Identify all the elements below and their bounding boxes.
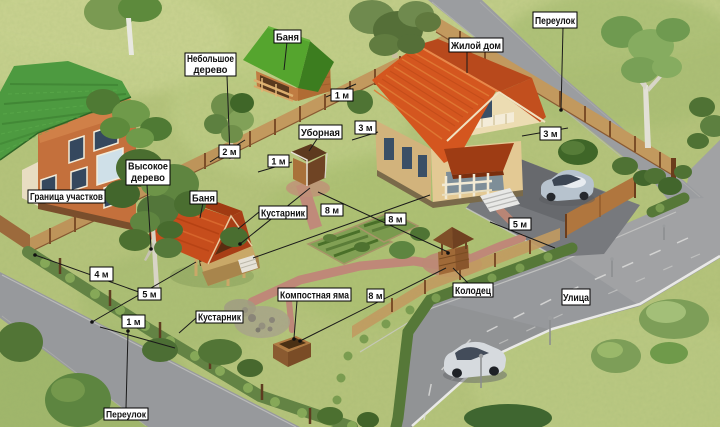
svg-text:Баня: Баня <box>276 33 299 44</box>
svg-text:Переулок: Переулок <box>106 410 146 421</box>
svg-text:1 м: 1 м <box>271 157 286 167</box>
svg-text:дерево: дерево <box>131 173 165 184</box>
svg-text:дерево: дерево <box>194 65 228 76</box>
svg-text:Баня: Баня <box>192 194 215 205</box>
svg-text:8 м: 8 м <box>368 291 383 301</box>
svg-text:1 м: 1 м <box>126 317 141 327</box>
svg-text:1 м: 1 м <box>335 91 350 101</box>
svg-text:Переулок: Переулок <box>535 16 576 27</box>
svg-text:Кустарник: Кустарник <box>198 313 242 324</box>
svg-text:8 м: 8 м <box>388 215 403 225</box>
svg-text:4 м: 4 м <box>94 270 109 280</box>
svg-text:Уборная: Уборная <box>301 127 340 139</box>
svg-text:5 м: 5 м <box>142 290 157 300</box>
svg-text:Кустарник: Кустарник <box>261 209 306 220</box>
svg-text:Жилой дом: Жилой дом <box>450 41 501 52</box>
svg-text:Улица: Улица <box>563 293 589 304</box>
svg-text:2 м: 2 м <box>222 147 237 157</box>
svg-text:8 м: 8 м <box>325 206 340 216</box>
svg-text:Колодец: Колодец <box>455 286 492 297</box>
svg-text:3 м: 3 м <box>543 129 558 139</box>
svg-text:Небольшое: Небольшое <box>187 53 234 65</box>
svg-text:Высокое: Высокое <box>128 162 168 173</box>
svg-text:Компостная яма: Компостная яма <box>280 291 349 302</box>
svg-text:3 м: 3 м <box>358 123 373 133</box>
svg-text:5 м: 5 м <box>513 220 528 230</box>
svg-text:Граница участков: Граница участков <box>30 192 103 203</box>
